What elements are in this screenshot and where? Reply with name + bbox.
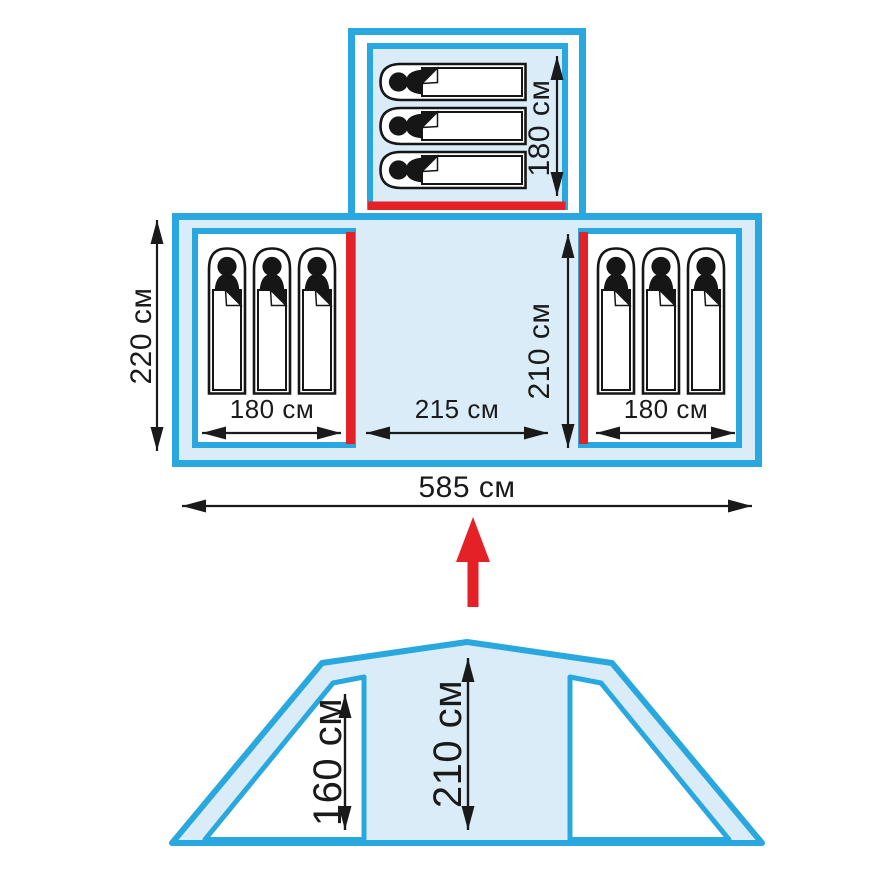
sleeping-bag-icon bbox=[209, 249, 245, 394]
right-room-door bbox=[579, 232, 588, 444]
sleeping-bag-icon bbox=[643, 249, 679, 394]
dimension-label-center-depth: 210 см bbox=[523, 302, 556, 399]
dimension-label-left-room: 180 см bbox=[230, 394, 314, 424]
floor-plan: 220 см 180 см 210 см 180 см 215 см 180 с… bbox=[125, 32, 759, 507]
sleeping-bag-icon bbox=[381, 108, 526, 144]
dimension-label-overall-width: 585 см bbox=[418, 471, 515, 504]
left-room-door bbox=[346, 232, 355, 444]
sleeping-bag-icon bbox=[381, 152, 526, 188]
elevation-right-opening bbox=[570, 677, 729, 840]
tent-dimensions-diagram: 220 см 180 см 210 см 180 см 215 см 180 с… bbox=[0, 0, 875, 875]
dimension-label-side-depth: 220 см bbox=[125, 287, 158, 384]
front-elevation: 160 см 210 см bbox=[172, 642, 762, 843]
red-up-arrow-icon bbox=[456, 517, 490, 607]
dimension-label-side-wall-height: 160 см bbox=[306, 698, 350, 826]
sleeping-bag-icon bbox=[688, 249, 724, 394]
sleeping-bag-icon bbox=[254, 249, 290, 394]
sleeping-bag-icon bbox=[381, 64, 526, 100]
dimension-label-ridge-height: 210 см bbox=[426, 680, 470, 808]
dimension-label-top-room: 180 см bbox=[523, 79, 556, 176]
sleeping-bag-icon bbox=[299, 249, 335, 394]
sleeping-bag-icon bbox=[598, 249, 634, 394]
diagram-svg: 220 см 180 см 210 см 180 см 215 см 180 с… bbox=[0, 0, 875, 875]
dimension-label-center-width: 215 см bbox=[415, 394, 499, 424]
top-room-door bbox=[368, 202, 566, 211]
dimension-label-right-room: 180 см bbox=[624, 394, 708, 424]
